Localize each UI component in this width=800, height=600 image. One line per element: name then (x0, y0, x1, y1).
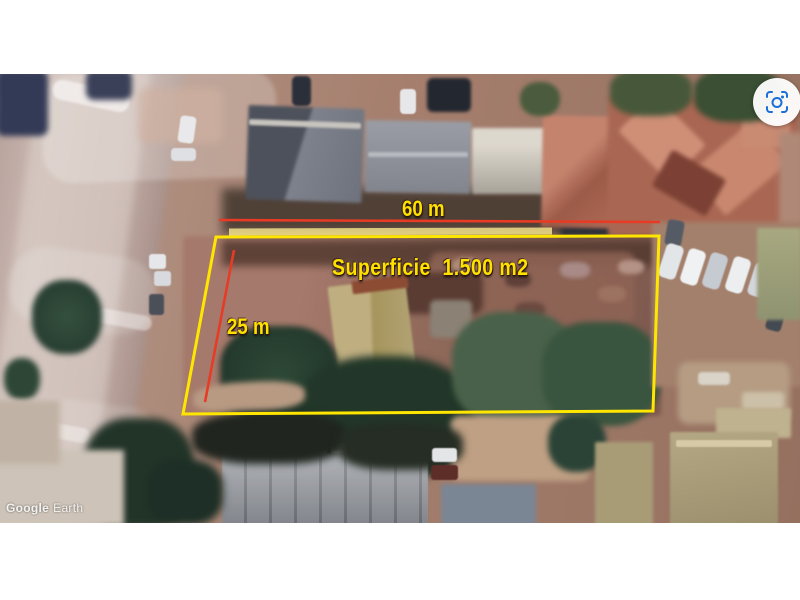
google-earth-watermark: GoogleEarth (6, 501, 83, 515)
depth-measurement-label: 25 m (227, 316, 270, 338)
car (431, 465, 458, 480)
tree (32, 280, 102, 354)
tree (192, 412, 347, 464)
roof-ridge (676, 440, 772, 447)
car (292, 76, 311, 106)
rubble (618, 260, 644, 274)
tree (148, 460, 223, 523)
roof-khaki (595, 442, 653, 523)
screenshot-lens-icon (764, 89, 790, 115)
road (0, 400, 60, 464)
car (432, 448, 457, 462)
rubble (560, 262, 590, 278)
car (400, 89, 416, 114)
car (154, 271, 171, 286)
tree (542, 322, 660, 426)
watermark-brand: Google (6, 501, 49, 515)
car (149, 294, 164, 315)
rubble (598, 286, 626, 302)
shadow (0, 74, 48, 136)
area-label: Superficie 1.500 m2 (332, 256, 529, 279)
car (427, 78, 471, 112)
tree (520, 82, 560, 116)
width-measurement-label: 60 m (402, 198, 445, 220)
roof (364, 120, 471, 194)
watermark-product: Earth (53, 501, 83, 515)
rubble (698, 372, 730, 385)
roof-ridge (368, 152, 468, 157)
pavement (441, 484, 536, 523)
shadow (86, 74, 132, 100)
google-earth-view: 60 m 25 m Superficie 1.500 m2 GoogleEart… (0, 0, 800, 600)
tree (338, 422, 463, 470)
tree (4, 358, 40, 400)
tree (610, 74, 692, 116)
roof-khaki (757, 228, 800, 320)
satellite-image[interactable] (0, 74, 800, 523)
car (171, 148, 196, 161)
capture-button[interactable] (753, 78, 800, 126)
car (149, 254, 166, 269)
